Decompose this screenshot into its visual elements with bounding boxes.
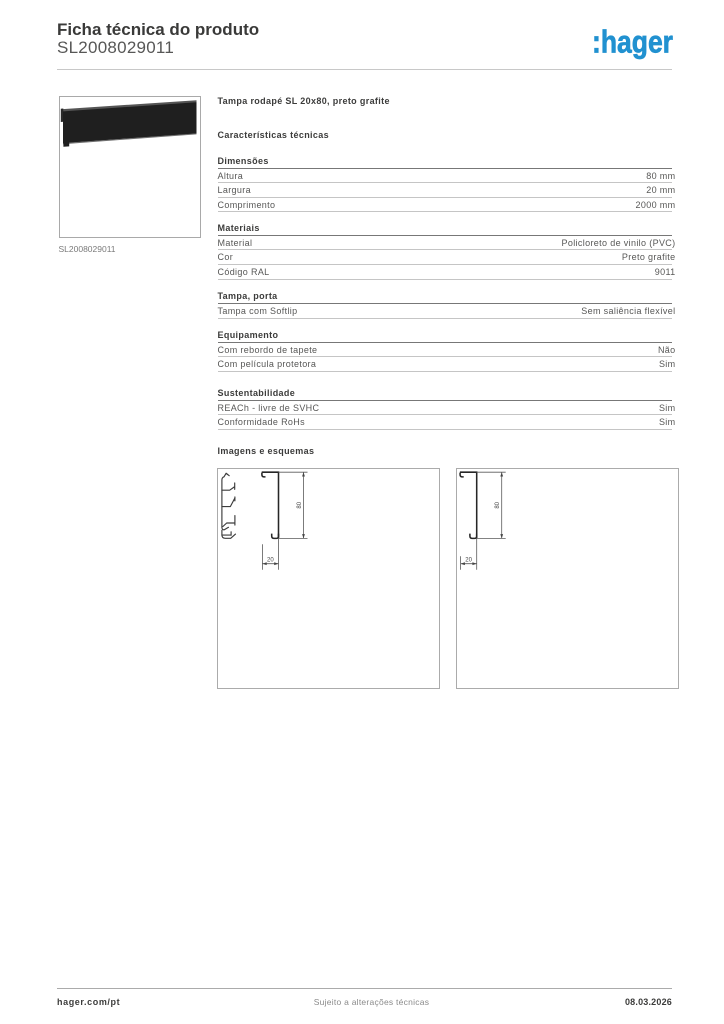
svg-text:80: 80 bbox=[297, 501, 303, 508]
svg-text:20: 20 bbox=[267, 558, 274, 564]
svg-text:20: 20 bbox=[466, 558, 473, 564]
svg-text:80: 80 bbox=[496, 501, 502, 508]
svg-text::hager: :hager bbox=[592, 23, 673, 59]
